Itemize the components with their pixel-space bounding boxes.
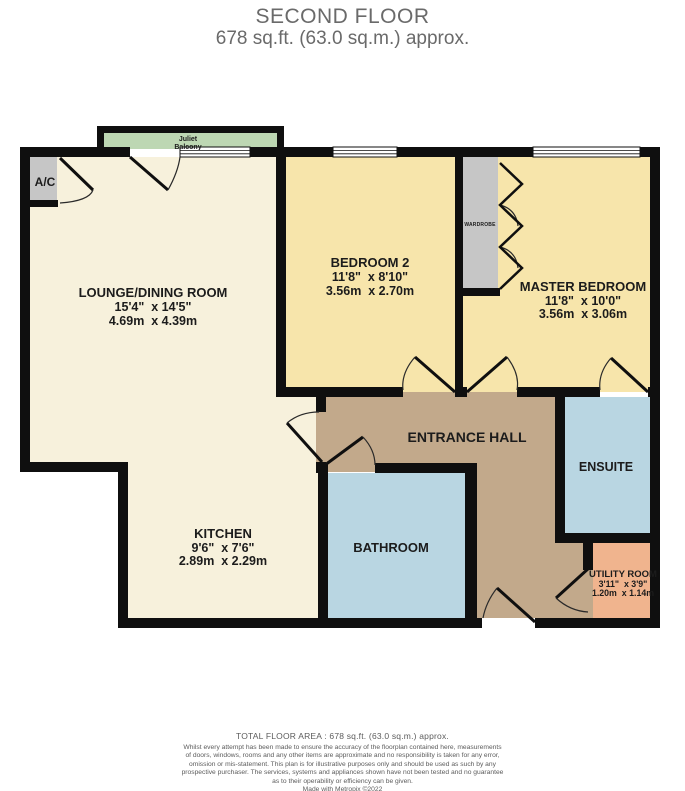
total-floor-area: TOTAL FLOOR AREA : 678 sq.ft. (63.0 sq.m… (0, 731, 685, 741)
hall-wall-1 (276, 387, 403, 397)
floor-plan: LOUNGE/DINING ROOM 15'4" x 14'5" 4.69m x… (0, 0, 685, 791)
hall-wall-2 (455, 387, 467, 397)
lounge-dims-imperial: 15'4" x 14'5" (115, 300, 192, 314)
bathroom-wall-right (465, 463, 477, 628)
page-footer: TOTAL FLOOR AREA : 678 sq.ft. (63.0 sq.m… (0, 731, 685, 791)
balcony-label-line1: Juliet (179, 136, 198, 143)
master-dims-imperial: 11'8" x 10'0" (545, 294, 621, 308)
master-window (533, 147, 640, 157)
hall-wall-4 (648, 387, 660, 397)
wardrobe-wall-bottom (455, 288, 500, 296)
ensuite-wall-left (555, 387, 565, 543)
utility-dims-metric: 1.20m x 1.14m (592, 588, 654, 598)
bedroom2-dims-metric: 3.56m x 2.70m (326, 284, 414, 298)
disclaimer-line: as to their operability or efficiency ca… (0, 778, 685, 786)
wall-bedroom2-master (455, 157, 463, 392)
balcony-wall-top (97, 126, 284, 133)
ac-wall-bottom (30, 200, 58, 207)
outer-wall-bottom-1 (118, 618, 482, 628)
disclaimer: Whilst every attempt has been made to en… (0, 744, 685, 791)
outer-wall-bottom-2 (535, 618, 660, 628)
bedroom2-label: BEDROOM 2 (331, 255, 410, 270)
disclaimer-line: prospective purchaser. The services, sys… (0, 769, 685, 777)
entrance-hall-label: ENTRANCE HALL (408, 429, 527, 445)
lounge-hall-divider-top (316, 387, 326, 412)
kitchen-wall-left (118, 462, 128, 628)
kitchen-label: KITCHEN (194, 526, 252, 541)
utility-wall-stub (583, 543, 593, 570)
master-bedroom-label: MASTER BEDROOM (520, 279, 646, 294)
outer-wall-left (20, 147, 30, 472)
floorplan-page: SECOND FLOOR 678 sq.ft. (63.0 sq.m.) app… (0, 0, 685, 791)
bathroom-wall-left (318, 463, 328, 628)
ensuite-wall-bottom (555, 533, 660, 543)
disclaimer-line: omission or mis-statement. This plan is … (0, 761, 685, 769)
wardrobe-label: WARDROBE (464, 222, 496, 228)
ac-label: A/C (35, 175, 56, 189)
bathroom-wall-top (375, 463, 475, 473)
kitchen-dims-imperial: 9'6" x 7'6" (192, 541, 255, 555)
outer-wall-top-2 (250, 147, 333, 157)
metropix-credit: Made with Metropix ©2022 (0, 786, 685, 791)
lounge-label: LOUNGE/DINING ROOM (79, 285, 228, 300)
master-dims-metric: 3.56m x 3.06m (539, 307, 627, 321)
outer-wall-top-1 (20, 147, 130, 157)
hall-fill-lower (475, 463, 555, 618)
bedroom2-dims-imperial: 11'8" x 8'10" (332, 270, 408, 284)
disclaimer-line: of doors, windows, rooms and any other i… (0, 752, 685, 760)
balcony-label-line2: Balcony (174, 144, 201, 151)
outer-wall-top-3 (397, 147, 533, 157)
ensuite-label: ENSUITE (579, 460, 633, 474)
lounge-dims-metric: 4.69m x 4.39m (109, 314, 197, 328)
bathroom-label: BATHROOM (353, 540, 429, 555)
wall-lounge-bedroom2 (276, 157, 286, 392)
step-wall (20, 462, 128, 472)
bedroom2-window (333, 147, 397, 157)
kitchen-dims-metric: 2.89m x 2.29m (179, 554, 267, 568)
disclaimer-line: Whilst every attempt has been made to en… (0, 744, 685, 752)
